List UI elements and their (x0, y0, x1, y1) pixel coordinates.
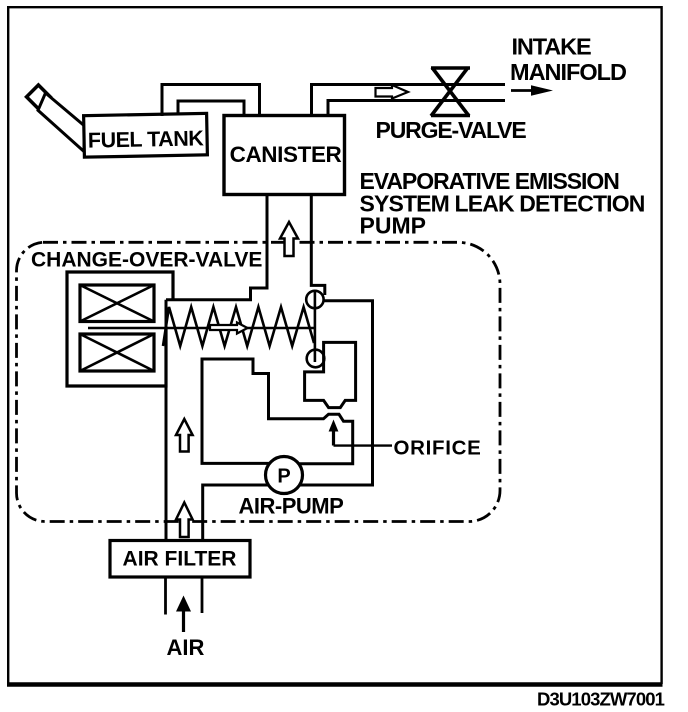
svg-text:P: P (277, 466, 290, 488)
svg-text:CHANGE-OVER-VALVE: CHANGE-OVER-VALVE (31, 249, 262, 272)
svg-text:ORIFICE: ORIFICE (394, 437, 482, 460)
svg-text:CANISTER: CANISTER (230, 142, 342, 167)
svg-text:FUEL TANK: FUEL TANK (88, 126, 205, 152)
svg-text:INTAKE: INTAKE (512, 34, 592, 60)
svg-text:AIR FILTER: AIR FILTER (123, 548, 237, 571)
svg-text:D3U103ZW7001: D3U103ZW7001 (537, 689, 665, 710)
svg-text:PUMP: PUMP (360, 213, 426, 239)
svg-text:MANIFOLD: MANIFOLD (510, 59, 626, 85)
svg-text:AIR: AIR (167, 635, 205, 660)
svg-text:AIR-PUMP: AIR-PUMP (239, 494, 344, 519)
svg-text:PURGE-VALVE: PURGE-VALVE (376, 117, 527, 143)
